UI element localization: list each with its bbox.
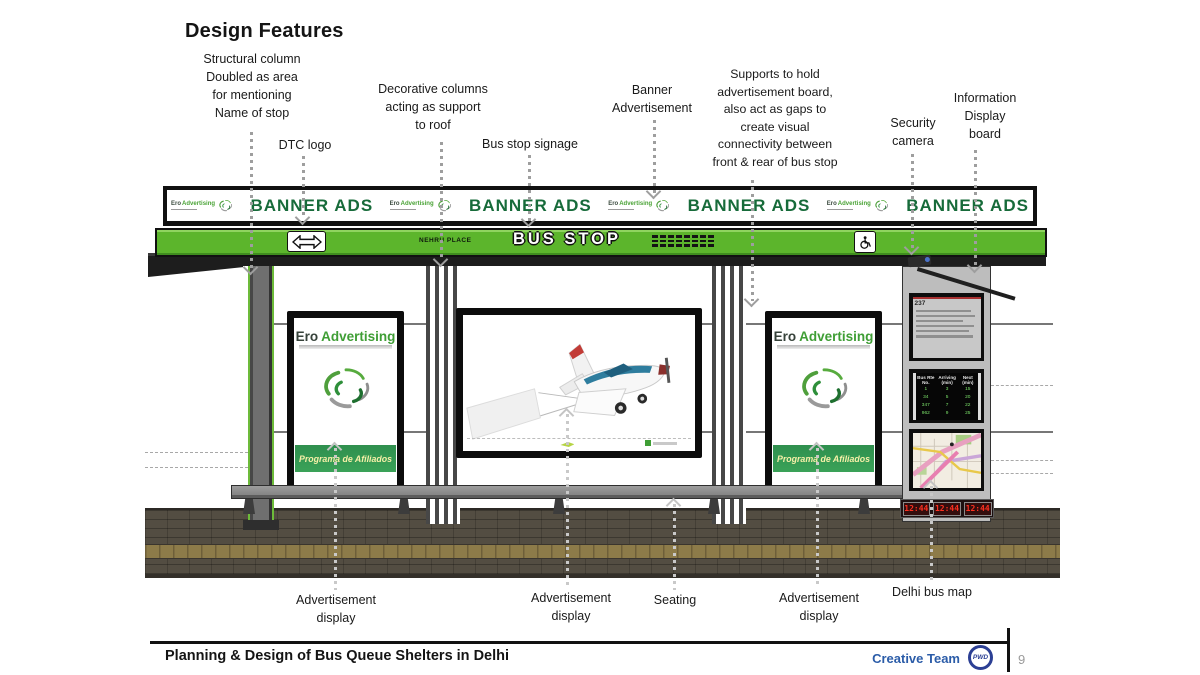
ero-advertising-logo: EroAdvertising — [608, 199, 671, 212]
guide-line — [145, 467, 248, 468]
bench-foot — [553, 499, 565, 514]
delhi-bus-map — [913, 433, 981, 488]
route-line — [652, 240, 716, 243]
banner-ads-text: BANNER ADS — [688, 196, 811, 216]
bus-map-display — [909, 429, 984, 491]
schedule-row — [916, 315, 976, 317]
advertisement-panel-left: EroAdvertising Programa de Afiliados — [287, 311, 404, 494]
schedule-display: 237 — [909, 293, 984, 361]
led-clock: 12:44 12:44 12:44 — [900, 499, 994, 518]
leader-line — [911, 154, 914, 249]
page-title: Design Features — [185, 20, 344, 43]
banner-ads-text: BANNER ADS — [250, 196, 373, 216]
label-ad-display-center: Advertisementdisplay — [511, 589, 631, 625]
ero-advertising-logo: EroAdvertising — [390, 199, 453, 212]
brand-text: Advertising — [182, 201, 215, 207]
brand-text: Ero — [774, 329, 797, 344]
leader-arrow-icon — [744, 292, 760, 308]
label-ad-display-right: Advertisementdisplay — [759, 589, 879, 625]
route-line — [652, 244, 716, 247]
brand-text: Advertising — [799, 329, 873, 344]
brand-text: Ero — [296, 329, 319, 344]
clock-time: 12:44 — [933, 502, 961, 516]
ad-content — [463, 315, 695, 451]
ero-advertising-logo: EroAdvertising — [171, 199, 234, 212]
ero-advertising-logo: EroAdvertising — [827, 199, 890, 212]
banner-ads-board: EroAdvertising BANNER ADS EroAdvertising… — [163, 186, 1037, 226]
banner-ads-text: BANNER ADS — [906, 196, 1029, 216]
schedule-row — [916, 330, 969, 332]
footer-credit: Creative Team — [830, 651, 960, 666]
column-base — [243, 520, 279, 530]
pwd-logo: PWD — [968, 645, 993, 670]
label-bus-stop-signage: Bus stop signage — [455, 135, 605, 153]
leader-line — [334, 448, 337, 590]
bench-foot — [858, 499, 870, 514]
ero-swirl-logo-icon — [217, 199, 234, 212]
ad-content: EroAdvertising Programa de Afiliados — [773, 319, 874, 486]
guide-line — [991, 460, 1053, 461]
roof-eave-left-tip — [148, 265, 243, 277]
brand-text: Advertising — [321, 329, 395, 344]
bus-stop-sign-text: BUS STOP — [479, 230, 655, 249]
leader-line — [930, 486, 933, 582]
bench-foot — [398, 499, 410, 514]
label-seating: Seating — [635, 591, 715, 609]
leader-line — [974, 150, 977, 267]
affiliates-text: Programa de Afiliados — [299, 454, 392, 464]
decorative-columns-left — [426, 252, 460, 524]
affiliates-band: Programa de Afiliados — [295, 444, 396, 473]
advertisement-panel-center — [456, 308, 702, 458]
leader-line — [816, 448, 819, 588]
label-decorative-columns: Decorative columnsacting as supportto ro… — [353, 80, 513, 134]
airplane-banner-graphic — [463, 315, 695, 451]
watermark-baseline — [467, 438, 691, 439]
clock-time: 12:44 — [903, 502, 931, 516]
tactile-strip — [145, 544, 1060, 559]
label-delhi-bus-map: Delhi bus map — [862, 583, 1002, 601]
footer-title: Planning & Design of Bus Queue Shelters … — [165, 648, 509, 664]
brand-text: Ero — [608, 201, 618, 207]
accessibility-sign — [854, 231, 876, 253]
ero-swirl-logo-icon — [436, 199, 453, 212]
clock-time: 12:44 — [964, 502, 992, 516]
ero-advertising-wordmark: EroAdvertising — [295, 329, 396, 344]
information-kiosk: 237 Bus Rte No.Arriving (min)Next (min)1… — [902, 266, 991, 522]
leader-line — [250, 132, 253, 270]
stop-name-text: NEHRU PLACE — [419, 237, 483, 244]
leader-line — [751, 180, 754, 301]
advertisement-panel-right: EroAdvertising Programa de Afiliados — [765, 311, 882, 494]
watermark-tag — [645, 440, 677, 446]
camera-lens-icon — [925, 257, 931, 263]
decorative-columns-right — [712, 252, 746, 524]
leader-line — [653, 120, 656, 193]
wheelchair-icon — [858, 235, 873, 250]
guide-line — [991, 385, 1053, 386]
brand-text: Advertising — [619, 201, 652, 207]
map-graphic — [913, 433, 981, 488]
footer-rule — [150, 641, 1008, 644]
arrival-screen: Bus Rte No.Arriving (min)Next (min)13153… — [913, 373, 981, 420]
page-number: 9 — [1018, 652, 1025, 667]
guide-line — [991, 473, 1053, 474]
brand-text: Advertising — [401, 201, 434, 207]
pwd-logo-text: PWD — [973, 654, 988, 661]
dtc-arrow-icon — [292, 235, 322, 249]
route-line — [652, 235, 716, 238]
route-list-block — [652, 235, 716, 249]
leader-line — [673, 504, 676, 590]
label-information-display: InformationDisplayboard — [935, 89, 1035, 143]
arrival-board: Bus Rte No.Arriving (min)Next (min)13153… — [909, 369, 984, 423]
brand-text: Advertising — [838, 201, 871, 207]
route-number: 237 — [913, 300, 981, 307]
ero-swirl-logo-icon — [654, 199, 671, 212]
slide: Design Features Structural columnDoubled… — [0, 0, 1200, 675]
schedule-row — [916, 335, 973, 337]
schedule-row — [916, 320, 964, 322]
label-ad-display-left: Advertisementdisplay — [276, 591, 396, 627]
dtc-logo — [287, 231, 326, 252]
schedule-screen: 237 — [913, 297, 981, 358]
brand-text: Ero — [171, 201, 181, 207]
label-dtc-logo: DTC logo — [255, 136, 355, 154]
arrivals-table: Bus Rte No.Arriving (min)Next (min)13153… — [917, 374, 977, 419]
guide-line — [145, 452, 248, 453]
brand-text: Ero — [827, 201, 837, 207]
leader-line — [566, 414, 569, 588]
affiliates-text: Programa de Afiliados — [777, 454, 870, 464]
label-structural-column: Structural columnDoubled as areafor ment… — [172, 50, 332, 122]
ero-advertising-wordmark: EroAdvertising — [773, 329, 874, 344]
ero-swirl-logo-icon — [795, 365, 853, 411]
footer-divider — [1007, 628, 1010, 672]
brand-text: Ero — [390, 201, 400, 207]
wordmark-shadow — [299, 345, 392, 349]
schedule-row — [916, 310, 972, 312]
leader-line — [440, 142, 443, 261]
ero-swirl-logo-icon — [317, 365, 375, 411]
label-supports: Supports to holdadvertisement board,also… — [685, 66, 865, 171]
ad-content: EroAdvertising Programa de Afiliados — [295, 319, 396, 486]
schedule-row — [916, 325, 974, 327]
schedule-header-line — [913, 297, 981, 299]
wordmark-shadow — [777, 345, 870, 349]
ero-swirl-logo-icon — [873, 199, 890, 212]
